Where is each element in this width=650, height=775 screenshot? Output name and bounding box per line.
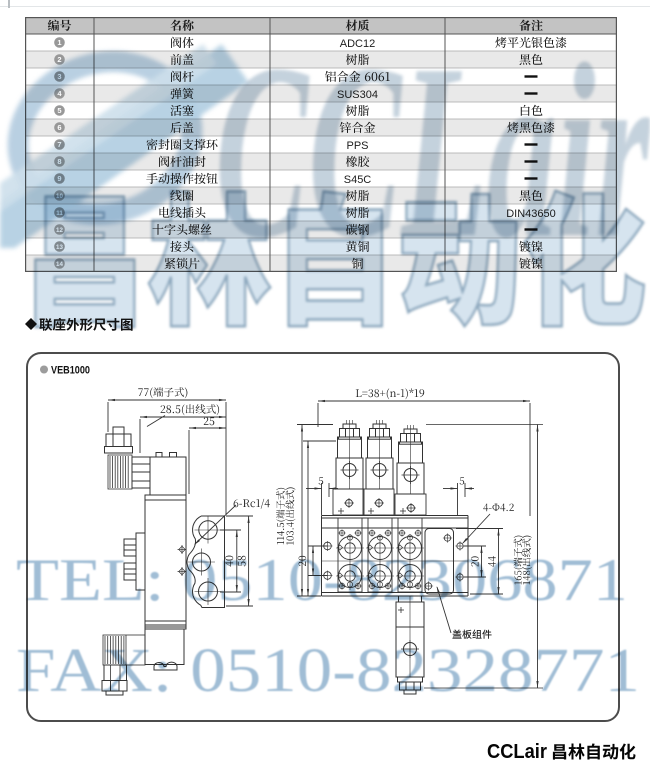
svg-text:FAX: 0510-82328771: FAX: 0510-82328771 (16, 637, 640, 705)
svg-text:CCLair: CCLair (487, 741, 547, 763)
svg-text:TEL: 0510-82306871: TEL: 0510-82306871 (16, 547, 628, 613)
svg-text:VEB1000: VEB1000 (51, 365, 90, 377)
